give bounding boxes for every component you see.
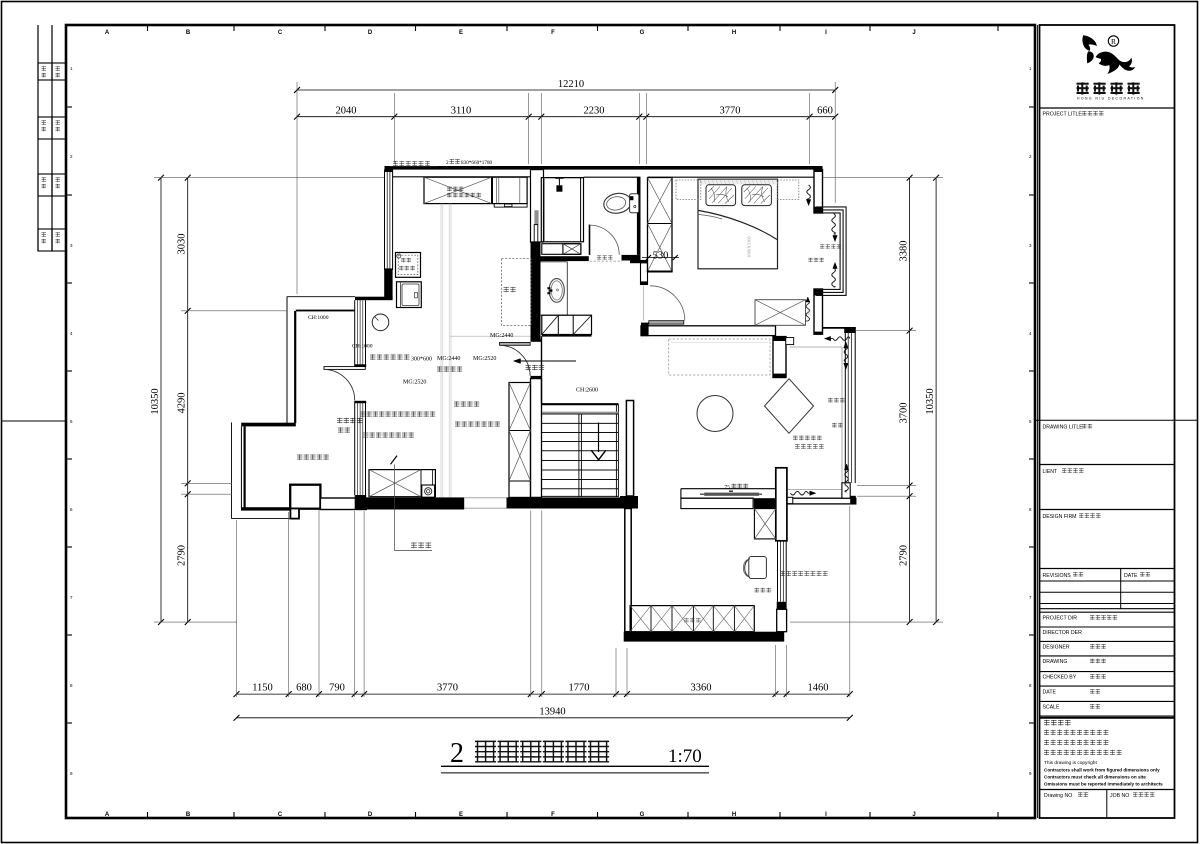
svg-text:3380: 3380 bbox=[899, 241, 910, 262]
svg-text:REVISIONS: REVISIONS bbox=[1043, 573, 1072, 579]
svg-text:F: F bbox=[551, 30, 555, 36]
svg-text:2: 2 bbox=[446, 160, 449, 166]
svg-text:DATE: DATE bbox=[1124, 573, 1138, 579]
svg-text:10350: 10350 bbox=[925, 388, 936, 414]
svg-text:2790: 2790 bbox=[899, 545, 910, 566]
svg-text:C: C bbox=[278, 30, 283, 36]
svg-text:2040: 2040 bbox=[336, 106, 357, 117]
svg-text:300*600: 300*600 bbox=[411, 357, 432, 363]
svg-text:MG:2440: MG:2440 bbox=[437, 356, 460, 362]
svg-text:MG:2440: MG:2440 bbox=[490, 333, 513, 339]
svg-text:D: D bbox=[368, 812, 373, 818]
svg-text:13940: 13940 bbox=[539, 707, 565, 718]
svg-text:CH:2600: CH:2600 bbox=[576, 387, 598, 393]
svg-text:J: J bbox=[912, 30, 915, 36]
svg-text:75: 75 bbox=[725, 485, 731, 491]
svg-text:10350: 10350 bbox=[150, 388, 161, 414]
svg-text:1150: 1150 bbox=[252, 683, 273, 694]
svg-text:E: E bbox=[459, 812, 463, 818]
svg-text:Drawing NO: Drawing NO bbox=[1044, 793, 1072, 799]
svg-text:1460: 1460 bbox=[808, 683, 829, 694]
svg-text:B: B bbox=[186, 30, 191, 36]
svg-text:DIRECTOR DER: DIRECTOR DER bbox=[1043, 630, 1083, 636]
svg-text:H: H bbox=[732, 812, 736, 818]
svg-text:D: D bbox=[368, 30, 373, 36]
svg-text:530: 530 bbox=[653, 251, 669, 262]
svg-text:4290: 4290 bbox=[177, 393, 188, 414]
svg-text:H: H bbox=[732, 30, 736, 36]
svg-text:B: B bbox=[186, 812, 191, 818]
svg-text:J: J bbox=[912, 812, 915, 818]
svg-text:DRAWING: DRAWING bbox=[1043, 659, 1068, 665]
svg-text:3110: 3110 bbox=[451, 106, 472, 117]
svg-text:E: E bbox=[459, 30, 463, 36]
svg-text:A: A bbox=[105, 812, 110, 818]
svg-text:C: C bbox=[278, 812, 283, 818]
svg-text:CH:1000: CH:1000 bbox=[352, 344, 373, 350]
svg-text:CHECKED BY: CHECKED BY bbox=[1043, 675, 1077, 681]
svg-text:CH:1000: CH:1000 bbox=[308, 315, 329, 321]
svg-text:G: G bbox=[640, 812, 645, 818]
svg-text:DRAWING LITLE: DRAWING LITLE bbox=[1043, 425, 1084, 431]
svg-text:PROJECT LITLE: PROJECT LITLE bbox=[1043, 112, 1083, 118]
svg-text:830*660*1780: 830*660*1780 bbox=[461, 160, 493, 166]
svg-text:Contractors must check all dim: Contractors must check all dimensions on… bbox=[1044, 775, 1146, 780]
svg-text:3770: 3770 bbox=[437, 683, 458, 694]
svg-text:PROJECT DIR: PROJECT DIR bbox=[1043, 616, 1078, 622]
svg-text:DESIGN FIRM: DESIGN FIRM bbox=[1043, 514, 1077, 520]
svg-text:3360: 3360 bbox=[691, 683, 712, 694]
svg-text:790: 790 bbox=[329, 683, 345, 694]
svg-text:Omissions must be reported imm: Omissions must be reported immediately t… bbox=[1044, 782, 1163, 787]
svg-text:660: 660 bbox=[817, 106, 833, 117]
svg-text:G: G bbox=[640, 30, 645, 36]
svg-text:1770: 1770 bbox=[569, 683, 590, 694]
svg-text:This drawing is copyright: This drawing is copyright bbox=[1044, 760, 1097, 766]
svg-text:2790: 2790 bbox=[177, 545, 188, 566]
svg-text:DATE: DATE bbox=[1043, 690, 1057, 696]
svg-text:R: R bbox=[1111, 37, 1116, 46]
svg-text:F: F bbox=[551, 812, 555, 818]
svg-text:A: A bbox=[105, 30, 110, 36]
svg-text:1800X3100: 1800X3100 bbox=[747, 235, 752, 257]
svg-text:12210: 12210 bbox=[558, 79, 584, 90]
svg-text:DESIGNER: DESIGNER bbox=[1043, 645, 1070, 651]
svg-text:680: 680 bbox=[296, 683, 312, 694]
svg-text:Contractors shall work from fi: Contractors shall work from figured dime… bbox=[1044, 768, 1160, 773]
svg-text:3030: 3030 bbox=[177, 234, 188, 255]
svg-text:2: 2 bbox=[450, 738, 464, 769]
svg-text:SCALE: SCALE bbox=[1043, 705, 1061, 711]
svg-text:3700: 3700 bbox=[899, 403, 910, 424]
svg-text:MG:2520: MG:2520 bbox=[403, 380, 426, 386]
svg-text:MG:2520: MG:2520 bbox=[473, 356, 496, 362]
svg-text:LIENT: LIENT bbox=[1043, 469, 1059, 475]
svg-text:JOB NO: JOB NO bbox=[1110, 793, 1129, 799]
svg-text:2230: 2230 bbox=[584, 106, 605, 117]
svg-text:3770: 3770 bbox=[720, 106, 741, 117]
svg-text:1:70: 1:70 bbox=[668, 746, 702, 767]
svg-text:3000: 3000 bbox=[808, 308, 812, 315]
svg-text:HONG NIU DECORATION: HONG NIU DECORATION bbox=[1077, 96, 1145, 100]
